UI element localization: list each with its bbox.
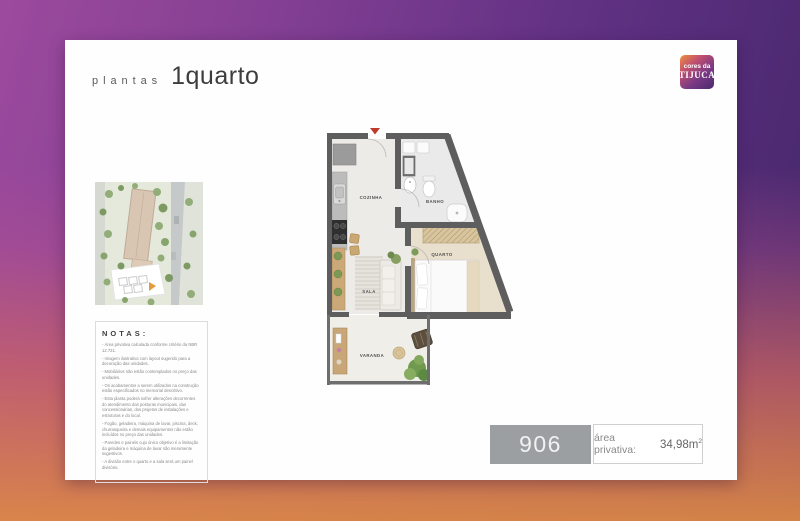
stove-icon [332, 220, 347, 244]
shower-icon [447, 204, 467, 222]
page-title: plantas 1quarto [92, 62, 259, 91]
entry-marker [370, 128, 380, 135]
title-main: 1quarto [171, 62, 259, 91]
map-highlight-units [111, 264, 165, 300]
notes-panel: NOTAS: - Área privativa calculada confor… [95, 321, 208, 483]
note-item: - Área privativa calculada conforme crit… [102, 342, 201, 353]
brand-logo: cores da TIJUCA [680, 55, 714, 89]
room-label-balcony: VARANDA [360, 353, 384, 358]
bath-cabinet [403, 156, 415, 176]
brand-logo-line1: cores da [684, 63, 711, 70]
plant-icon [411, 248, 418, 255]
note-item: - Os acabamentos a serem utilizados na c… [102, 383, 201, 394]
sink-icon [334, 184, 346, 204]
note-item: - Imagem ilustrativa com layout sugerido… [102, 356, 201, 367]
balcony-side-table [393, 347, 405, 359]
area-value: 34,98m2 [660, 438, 702, 451]
room-label-bath: BANHO [426, 199, 444, 204]
note-item: - Mobiliários não estão contemplados no … [102, 369, 201, 380]
room-label-living: SALA [362, 289, 376, 294]
bath-sink-icon [404, 177, 416, 193]
note-item: - Paredes e painéis cujo único objetivo … [102, 440, 201, 457]
wardrobe [423, 227, 479, 243]
notes-heading: NOTAS: [102, 329, 201, 338]
note-item: - A divisão entre o quarto e a sala será… [102, 459, 201, 470]
unit-number: 906 [519, 431, 562, 458]
note-item: - Esta planta poderá sofrer alterações d… [102, 396, 201, 418]
map-car [171, 252, 176, 260]
area-label: área privativa: [594, 432, 656, 456]
room-label-kitchen: COZINHA [360, 195, 383, 200]
room-label-bedroom: QUARTO [431, 252, 452, 257]
unit-area-box: área privativa: 34,98m2 [593, 424, 703, 464]
unit-number-badge: 906 [490, 425, 591, 464]
site-map-illustration [95, 182, 203, 305]
balcony-sideboard [333, 328, 347, 374]
map-car [174, 216, 179, 224]
brand-logo-line2: TIJUCA [679, 70, 716, 80]
title-kicker: plantas [92, 75, 162, 87]
sofa [380, 260, 401, 310]
map-road-left [95, 182, 105, 305]
toilet-icon [423, 176, 435, 197]
slide-card: plantas 1quarto cores da TIJUCA [65, 40, 737, 480]
floor-plan: COZINHA BANHO QUARTO SALA VARANDA [323, 128, 513, 390]
note-item: - Fogão, geladeira, máquina de lavar, pi… [102, 421, 201, 438]
bed [411, 258, 479, 316]
